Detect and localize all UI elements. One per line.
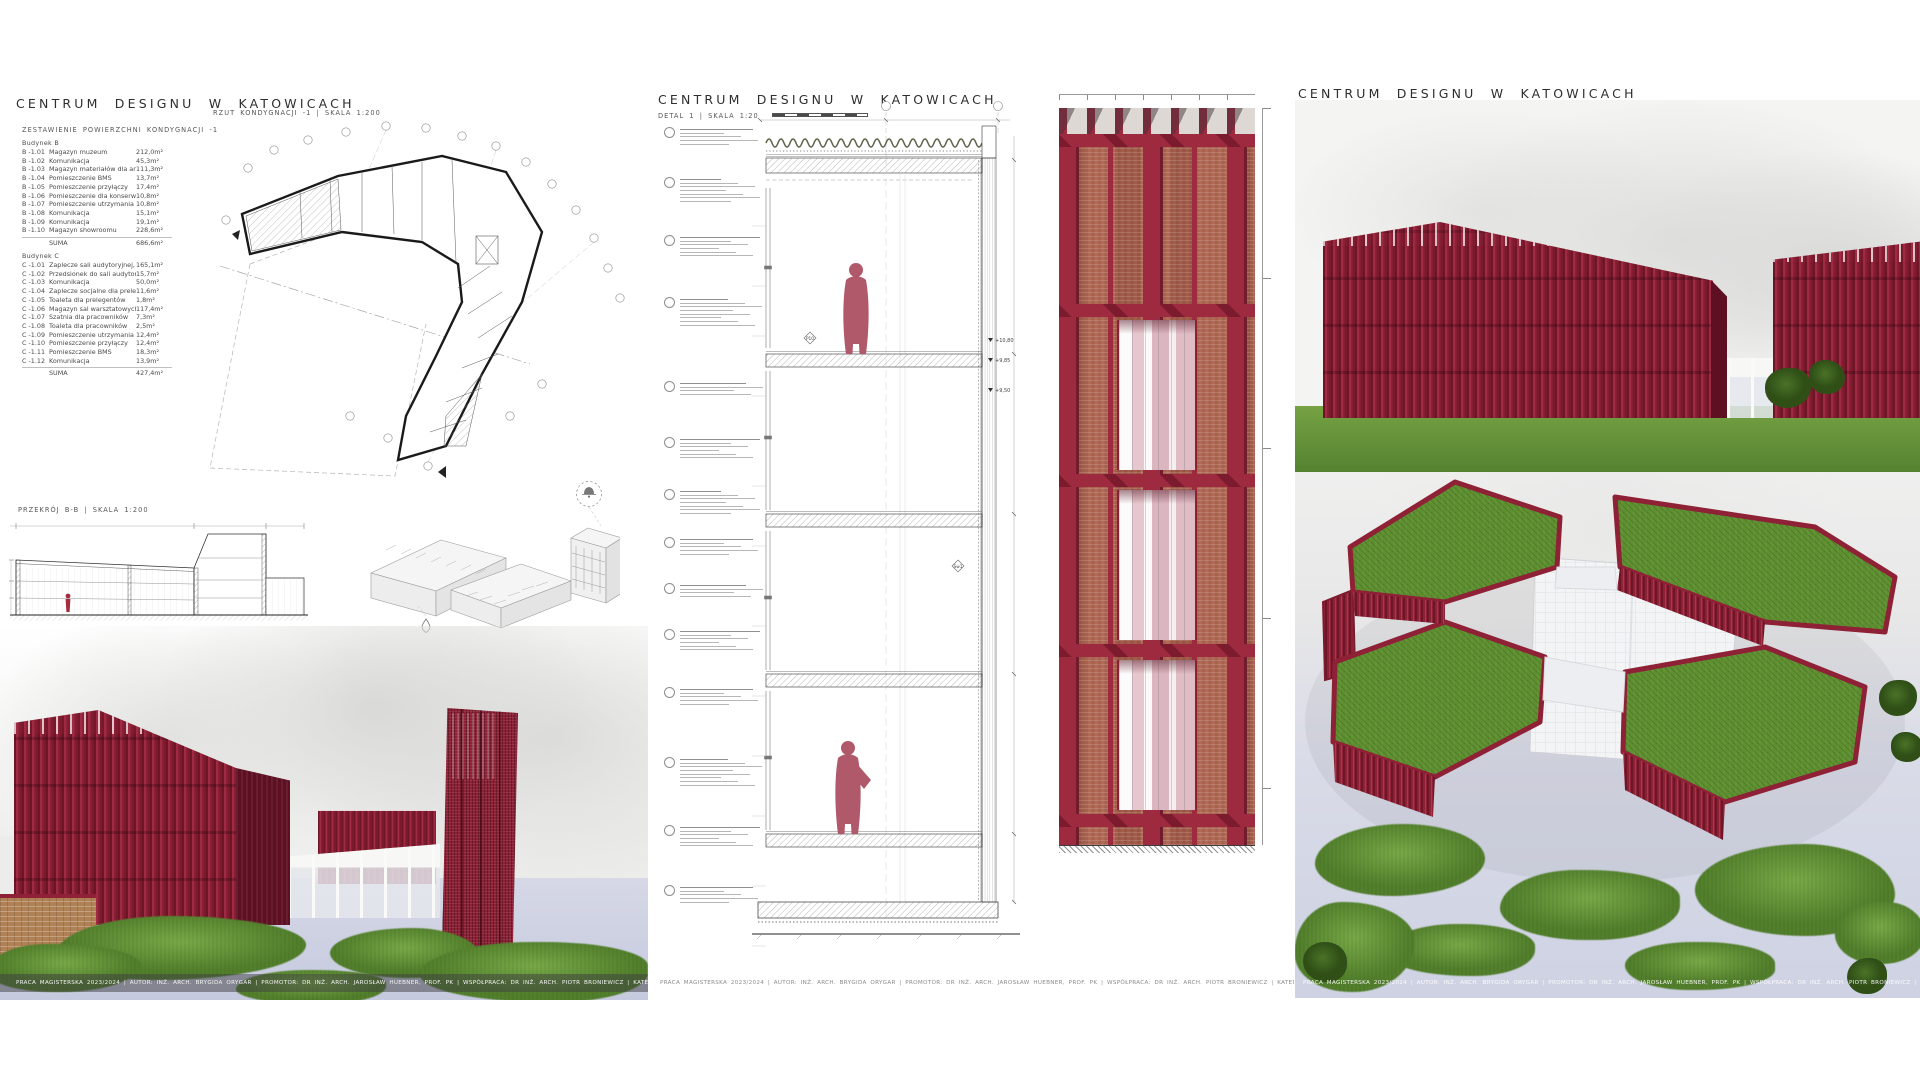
marker-p10-label: P10 [806, 336, 814, 342]
callout-ring-icon [664, 127, 675, 138]
callout-ring-icon [664, 297, 675, 308]
area-table-row: B -1.04Pomieszczenie BMS13,7m² [22, 174, 172, 183]
callout-ring-icon [664, 537, 675, 548]
building-c-rows: C -1.01Zaplecze sali audytoryjnej, magaz… [22, 261, 172, 365]
section-drawing [8, 518, 310, 632]
area-table-row: B -1.09Komunikacja19,1m² [22, 218, 172, 227]
floor-slabs [766, 352, 982, 848]
area-table-row: B -1.05Pomieszczenie przyłączy17,4m² [22, 183, 172, 192]
detail-callout-group [664, 436, 760, 458]
area-table-row: B -1.01Magazyn muzeum212,0m² [22, 148, 172, 157]
svg-text:+9,50: +9,50 [995, 388, 1010, 394]
area-table-row: B -1.06Pomieszczenie dla konserwatora10,… [22, 192, 172, 201]
section-label: PRZEKRÓJ B-B | SKALA 1:200 [18, 506, 149, 514]
lawn-patch [1500, 870, 1680, 940]
facade-dimension-line-top [1059, 94, 1255, 100]
detail-callout-group [664, 176, 760, 202]
axonometric-drawing [356, 478, 620, 650]
detail-callout-group [664, 686, 758, 705]
building-b-label: Budynek B [22, 139, 172, 147]
right-panel: CENTRUM DESIGNU W KATOWICACH [1295, 0, 1920, 1080]
area-table-row: B -1.07Pomieszczenie utrzymania porządku… [22, 200, 172, 209]
facade-floor-band [1059, 814, 1255, 827]
facade-gable-strip [1059, 108, 1255, 134]
area-table-row: C -1.03Komunikacja50,0m² [22, 278, 172, 287]
marker-sw1: Sw1 [952, 560, 964, 572]
detail-callout-group [664, 296, 762, 326]
area-table-heading: ZESTAWIENIE POWIERZCHNI KONDYGNACJI -1 [22, 126, 218, 134]
exterior-render-top [1295, 100, 1920, 472]
callout-leader-stubs [752, 226, 766, 946]
svg-text:+10,80: +10,80 [995, 338, 1014, 344]
area-table-row: C -1.01Zaplecze sali audytoryjnej, magaz… [22, 261, 172, 270]
callout-ring-icon [664, 381, 675, 392]
facade-floor-band [1059, 644, 1255, 657]
callout-ring-icon [664, 437, 675, 448]
marker-sw1-label: Sw1 [954, 564, 963, 570]
facade-window-strip [1117, 320, 1197, 470]
building-c-label: Budynek C [22, 252, 172, 260]
area-table: Budynek B B -1.01Magazyn muzeum212,0m²B … [22, 139, 172, 247]
facade-elevation [1059, 108, 1255, 845]
floor-plan-drawing [190, 116, 640, 484]
area-table-row: C -1.02Przedsionek do sali audytoryjnej1… [22, 270, 172, 279]
area-table-row: B -1.03Magazyn materiałów dla artystów11… [22, 165, 172, 174]
callout-ring-icon [664, 687, 675, 698]
building-b-suma: SUMA 686,6m² [22, 237, 172, 248]
callout-ring-icon [664, 489, 675, 500]
callout-ring-icon [664, 825, 675, 836]
green-roof-vegetation [766, 139, 982, 147]
building-b-rows: B -1.01Magazyn muzeum212,0m²B -1.02Komun… [22, 148, 172, 235]
area-table-row: C -1.11Pomieszczenie BMS18,3m² [22, 348, 172, 357]
left-panel: CENTRUM DESIGNU W KATOWICACH ZESTAWIENIE… [0, 0, 648, 1080]
facade-window-strip [1117, 490, 1197, 640]
window-mullions [765, 188, 772, 830]
area-table-row: C -1.10Pomieszczenie przyłączy12,4m² [22, 339, 172, 348]
construction-detail-drawing: P10 Sw1 +10,80 +9,85 +9,50 [752, 96, 1020, 968]
callout-ring-icon [664, 885, 675, 896]
facade-ground-hatch [1059, 845, 1255, 853]
detail-callout-group [664, 756, 762, 786]
detail-callout-group [664, 380, 763, 395]
exterior-render-aerial [1295, 472, 1920, 998]
area-table-row: C -1.07Szatnia dla pracowników7,3m² [22, 313, 172, 322]
detail-callout-group [664, 488, 760, 514]
detail-callout-group [664, 884, 758, 903]
building-c-suma: SUMA 427,4m² [22, 367, 172, 378]
human-figure-small [66, 594, 71, 612]
footer-credit: PRACA MAGISTERSKA 2023/2024 | AUTOR: INŻ… [652, 974, 1294, 992]
area-table-row: C -1.06Magazyn sal warsztatowych117,4m² [22, 305, 172, 314]
callout-ring-icon [664, 235, 675, 246]
detail-callout-group [664, 126, 758, 145]
mesh-panel [452, 713, 496, 779]
detail-callout-group [664, 628, 760, 650]
human-figure-silhouette [843, 263, 868, 354]
render-main-building-side [236, 768, 290, 925]
human-figure-silhouette [835, 741, 871, 834]
detail-callout-group [664, 582, 763, 597]
footer-credit: PRACA MAGISTERSKA 2023/2024 | AUTOR: INŻ… [1295, 974, 1920, 992]
svg-text:+9,85: +9,85 [995, 358, 1010, 364]
detail-callout-group [664, 536, 758, 555]
lawn-patch [1835, 902, 1920, 964]
area-table-row: B -1.10Magazyn showroomu228,6m² [22, 226, 172, 235]
lamp-icon [577, 482, 602, 527]
facade-dimension-chain [1262, 108, 1271, 845]
callout-ring-icon [664, 629, 675, 640]
area-table-row: C -1.09Pomieszczenie utrzymania porządku… [22, 331, 172, 340]
bush [1809, 360, 1845, 394]
callout-ring-icon [664, 177, 675, 188]
footer-credit: PRACA MAGISTERSKA 2023/2024 | AUTOR: INŻ… [0, 974, 648, 992]
facade-floor-band [1059, 304, 1255, 317]
exterior-render-left [0, 626, 648, 1000]
facade-floor-band [1059, 474, 1255, 487]
area-table-row: C -1.05Toaleta dla prelegentów1,8m² [22, 296, 172, 305]
callout-ring-icon [664, 757, 675, 768]
area-table-row: C -1.12Komunikacja13,9m² [22, 357, 172, 366]
area-table-row: C -1.08Toaleta dla pracowników2,5m² [22, 322, 172, 331]
facade-floor-band [1059, 134, 1255, 147]
tree [1891, 732, 1920, 762]
page-title: CENTRUM DESIGNU W KATOWICACH [1298, 86, 1637, 101]
area-table-building-c: Budynek C C -1.01Zaplecze sali audytoryj… [22, 252, 172, 378]
area-table-row: C -1.04Zaplecze socjalne dla prelegentów… [22, 287, 172, 296]
mar-p10: P10 [804, 332, 816, 344]
detail-callout-group [664, 824, 760, 846]
render-slab-tower [442, 708, 518, 958]
facade-window-strip [1117, 660, 1197, 810]
detail-callout-group [664, 234, 760, 256]
area-table-row: B -1.08Komunikacja15,1m² [22, 209, 172, 218]
callout-ring-icon [664, 583, 675, 594]
area-table-row: B -1.02Komunikacja45,3m² [22, 157, 172, 166]
render-building-left-side [1711, 280, 1727, 418]
